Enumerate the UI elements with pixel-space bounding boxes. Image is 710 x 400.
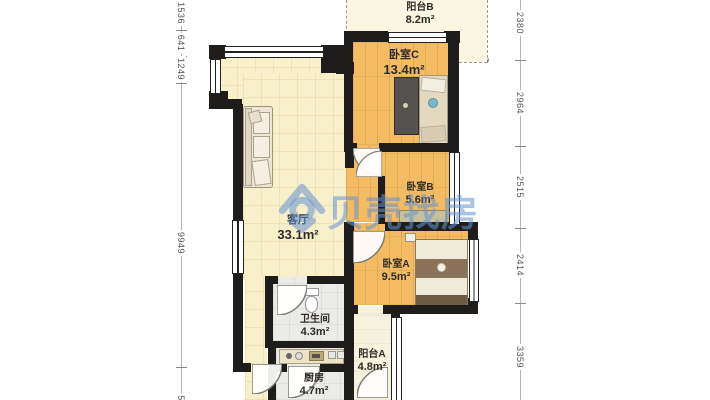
room-area: 4.3m² — [300, 326, 330, 339]
dimension-label: 5 — [176, 393, 186, 400]
wall — [344, 42, 353, 145]
dimension-label: 2515 — [515, 174, 525, 200]
room-name: 客厅 — [277, 214, 318, 227]
bed-pillow — [420, 77, 446, 94]
window — [232, 220, 244, 274]
living-room-label: 客厅 33.1m² — [277, 214, 318, 243]
window — [469, 239, 479, 302]
dimension-label: 3359 — [515, 344, 525, 370]
room-area: 4.7m² — [300, 385, 329, 398]
bed-round-pillow — [428, 98, 438, 108]
bed-blanket — [420, 125, 446, 143]
sofa-seat-cushion — [253, 136, 270, 158]
dimension-tick — [515, 60, 526, 61]
dimension-label: 641 — [176, 33, 186, 54]
bathroom-door-opening — [278, 277, 307, 284]
room-area: 33.1m² — [277, 227, 318, 243]
room-name: 厨房 — [300, 373, 329, 385]
room-name: 卧室C — [383, 49, 424, 62]
wall — [268, 341, 348, 348]
room-area: 13.4m² — [383, 62, 424, 78]
wall — [265, 276, 273, 348]
wardrobe-knob — [403, 103, 408, 108]
wall — [233, 363, 251, 372]
window — [210, 59, 221, 94]
wall — [307, 276, 348, 284]
room-area: 4.8m² — [358, 361, 387, 374]
dimension-label: 2380 — [515, 10, 525, 36]
bedroom-b-door — [356, 151, 382, 177]
dimension-tick — [515, 303, 526, 304]
faucet — [286, 353, 292, 359]
bedroom-a-label: 卧室A 9.5m² — [382, 259, 411, 284]
stove-burner — [312, 354, 320, 358]
dimension-tick — [515, 146, 526, 147]
window — [388, 32, 447, 43]
room-area: 9.5m² — [382, 271, 411, 284]
floor-plan: ↘ — [0, 0, 710, 400]
dimension-label: 9949 — [176, 230, 186, 256]
balcony-b-label: 阳台B 8.2m² — [406, 2, 435, 27]
dimension-tick — [176, 367, 187, 368]
window — [391, 317, 402, 400]
wall — [448, 31, 459, 147]
bedroom-c-label: 卧室C 13.4m² — [383, 49, 424, 78]
wall — [379, 143, 459, 152]
dimension-label: 2414 — [515, 252, 525, 278]
window — [224, 46, 324, 58]
room-name: 卧室A — [382, 259, 411, 271]
bathroom-door — [277, 285, 307, 315]
balcony-a-door-opening — [358, 306, 383, 314]
kitchen-label: 厨房 4.7m² — [300, 373, 329, 398]
wall — [320, 364, 348, 372]
dimension-label: 1536 — [176, 0, 186, 26]
entrance-door — [252, 364, 282, 394]
room-name: 阳台A — [358, 349, 387, 361]
wall — [233, 271, 243, 363]
dimension-tick — [176, 83, 187, 84]
bathroom-label: 卫生间 4.3m² — [300, 314, 330, 339]
dimension-tick — [515, 228, 526, 229]
watermark-brand-text: 贝壳找房 — [327, 183, 479, 237]
wall — [233, 104, 243, 222]
bed-foot-band — [416, 295, 467, 305]
dimension-tick — [176, 30, 187, 31]
counter-hob — [328, 351, 336, 359]
bed-round-pillow — [437, 263, 446, 272]
wall — [344, 31, 388, 42]
wall — [344, 305, 358, 314]
room-area: 8.2m² — [406, 14, 435, 27]
balcony-a-label: 阳台A 4.8m² — [358, 349, 387, 374]
dimension-label: 2964 — [515, 90, 525, 116]
sofa-seat-cushion — [251, 159, 271, 186]
room-name: 阳台B — [406, 2, 435, 14]
sink — [295, 352, 303, 360]
dimension-label: 1249 — [176, 56, 186, 82]
room-name: 卫生间 — [300, 314, 330, 326]
